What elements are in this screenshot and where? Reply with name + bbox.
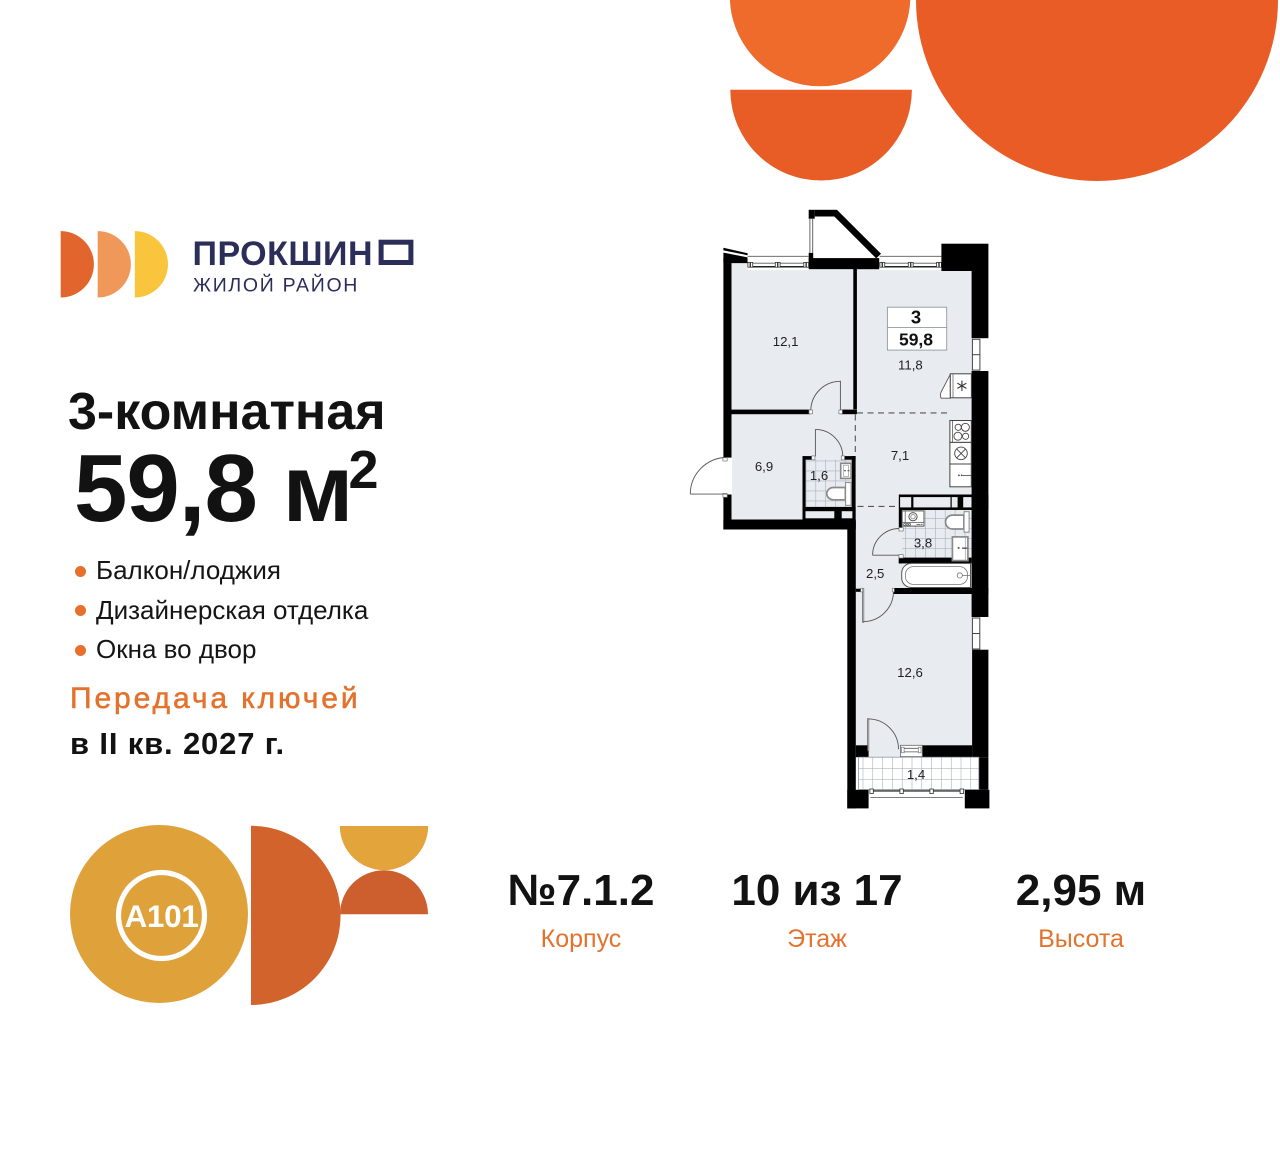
svg-text:3: 3 — [911, 307, 921, 328]
svg-text:1,4: 1,4 — [907, 767, 925, 782]
svg-text:1,6: 1,6 — [810, 468, 828, 483]
svg-text:6,9: 6,9 — [755, 459, 773, 474]
svg-text:12,1: 12,1 — [773, 334, 799, 349]
svg-text:2,5: 2,5 — [866, 566, 884, 581]
svg-text:3,8: 3,8 — [914, 535, 932, 550]
svg-text:7,1: 7,1 — [891, 448, 909, 463]
svg-text:12,6: 12,6 — [897, 665, 923, 680]
svg-text:11,8: 11,8 — [898, 357, 923, 372]
svg-text:59,8: 59,8 — [899, 330, 933, 350]
